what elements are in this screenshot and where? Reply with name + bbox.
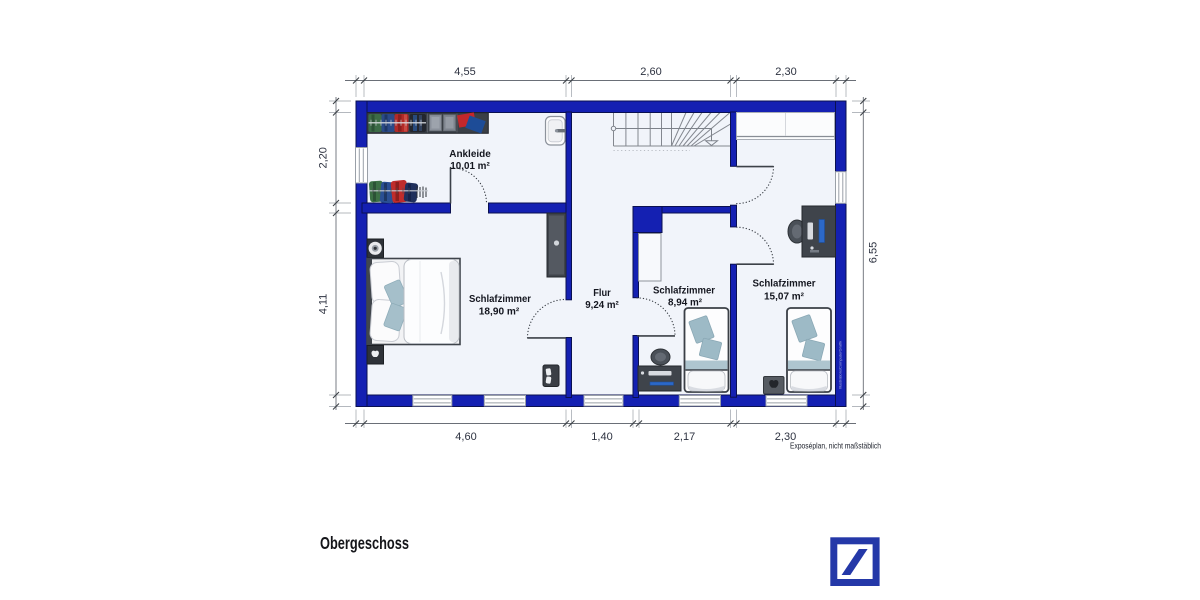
svg-text:2,17: 2,17 [674,431,695,443]
svg-text:1,40: 1,40 [591,431,612,443]
svg-text:18,90 m²: 18,90 m² [479,306,520,318]
svg-text:4,55: 4,55 [454,66,475,78]
svg-text:4,11: 4,11 [318,294,330,315]
svg-text:4,60: 4,60 [455,431,476,443]
svg-text:2,30: 2,30 [775,66,796,78]
svg-text:Schlafzimmer: Schlafzimmer [469,293,531,305]
svg-text:Schlafzimmer: Schlafzimmer [753,278,816,290]
svg-text:15,07 m²: 15,07 m² [764,291,804,303]
svg-text:Schlafzimmer: Schlafzimmer [653,285,715,297]
svg-text:Ankleide: Ankleide [449,148,491,160]
svg-text:9,24 m²: 9,24 m² [585,299,619,311]
svg-text:Exposéplan, nicht maßstäblich: Exposéplan, nicht maßstäblich [790,441,881,451]
svg-text:IllustrationsComputerGrafik: IllustrationsComputerGrafik [838,341,843,389]
svg-text:8,94 m²: 8,94 m² [668,297,702,309]
svg-text:10,01 m²: 10,01 m² [450,160,490,172]
svg-text:2,20: 2,20 [318,147,330,168]
svg-text:Flur: Flur [593,287,611,299]
svg-text:Obergeschoss: Obergeschoss [320,533,409,553]
svg-text:2,60: 2,60 [640,66,661,78]
svg-text:6,55: 6,55 [868,242,880,263]
